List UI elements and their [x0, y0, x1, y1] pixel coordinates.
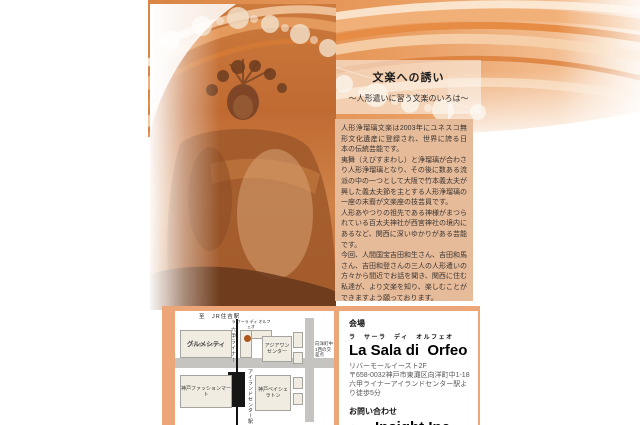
map-crossing-label: 向洋町中1西の交差点 [315, 341, 334, 358]
map-building-block [293, 332, 303, 348]
map-building-block [293, 377, 303, 389]
flyer-page: 文楽への誘い 〜人形遣いに習う文楽のいろは〜 人形浄瑠璃文楽は2003年にユネス… [0, 0, 640, 425]
venue-address-line: 六甲ライナーアイランドセンター駅より徒歩5分 [349, 380, 474, 398]
venue-address-line: リバーモールイースト2F [349, 362, 474, 371]
venue-heading: 会場 [349, 318, 474, 329]
intro-paragraph: 夷舞（えびすまわし）と浄瑠璃が合わさり人形浄瑠璃となり、その後に数ある流派の中の… [341, 156, 467, 209]
intro-paragraph: 人形あやつりの祖先である神様がまつられている百太夫神社が西宮神社の境内にあるなど… [341, 209, 467, 251]
map-building-gourmet-city-name: グルメシティ [187, 341, 226, 348]
intro-paragraph: 今回、人間国宝吉田和生さん、吉田和馬さん、吉田和登さんの三人の人形遣いの方々から… [341, 251, 467, 304]
venue-name: La Sala di Orfeo [349, 342, 474, 359]
venue-marker-icon [244, 335, 251, 342]
title-box: 文楽への誘い 〜人形遣いに習う文楽のいろは〜 [336, 60, 481, 114]
venue-marker-label: ラ サーラ ディ オルフェオ [231, 319, 271, 329]
map-building-block [293, 352, 303, 364]
venue-address-line: 〒658-0032神戸市東灘区向洋町中1-18 [349, 371, 474, 380]
contact-heading: お問い合わせ [349, 406, 474, 417]
map-road-vertical [305, 318, 314, 422]
map-building-block [293, 393, 303, 405]
puppet-photo [150, 4, 336, 310]
flyer-title: 文楽への誘い [336, 69, 481, 85]
flyer-subtitle: 〜人形遣いに習う文楽のいろは〜 [336, 93, 481, 104]
contact-company-name: Insight Inc. [375, 419, 454, 425]
map-building-gourmet-city: マーケットシーン グルメシティ [180, 330, 232, 358]
map-station-name: アイランドセンター駅 [247, 369, 254, 425]
map-building-bay-sheraton: 神戸ベイシェラトン [255, 375, 291, 411]
map-building-asia-one-center: アジアワンセンター [262, 336, 292, 362]
info-panel: 会場 ラ サーラ ディ オルフェオ La Sala di Orfeo リバーモー… [339, 311, 478, 425]
map-building-fashion-mart: 神戸ファッションマート [180, 375, 232, 408]
contact-company-row: 企画： Insight Inc. [349, 419, 474, 425]
venue-name-kana: ラ サーラ ディ オルフェオ [349, 332, 474, 341]
intro-text-panel: 人形浄瑠璃文楽は2003年にユネスコ無形文化遺産に登録され、世界に誇る日本の伝統… [335, 119, 473, 301]
intro-paragraph: 人形浄瑠璃文楽は2003年にユネスコ無形文化遺産に登録され、世界に誇る日本の伝統… [341, 124, 467, 156]
access-map: 至 JR住吉駅 六甲ライナー アイランドセンター駅 マーケットシーン グルメシテ… [175, 311, 334, 425]
